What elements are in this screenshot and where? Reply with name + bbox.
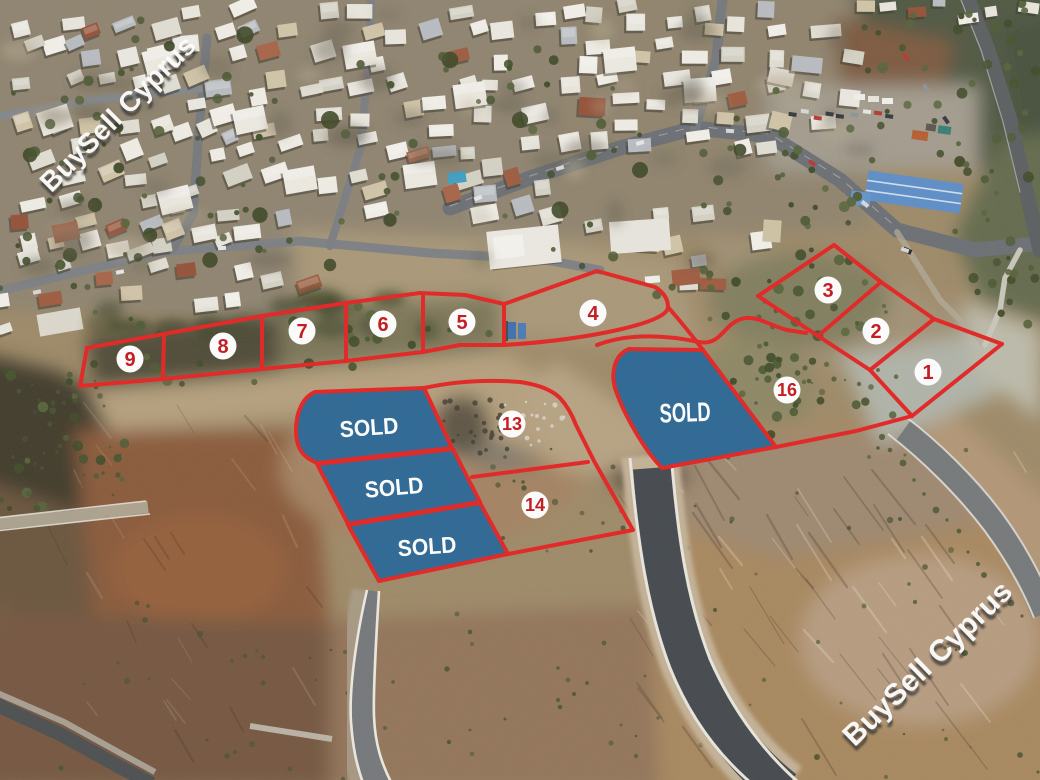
svg-text:5: 5 (456, 312, 467, 334)
svg-text:16: 16 (777, 380, 797, 400)
svg-text:4: 4 (587, 303, 599, 325)
svg-text:3: 3 (822, 280, 833, 302)
svg-text:14: 14 (525, 495, 545, 515)
svg-text:SOLD: SOLD (397, 531, 457, 561)
svg-text:SOLD: SOLD (364, 472, 425, 503)
svg-text:8: 8 (217, 336, 228, 358)
svg-text:6: 6 (377, 314, 388, 336)
svg-text:SOLD: SOLD (339, 412, 399, 442)
svg-text:13: 13 (502, 414, 522, 434)
svg-text:SOLD: SOLD (659, 396, 711, 428)
svg-text:9: 9 (124, 349, 135, 371)
svg-text:2: 2 (870, 321, 881, 343)
svg-text:1: 1 (922, 362, 933, 384)
svg-text:7: 7 (296, 321, 307, 343)
